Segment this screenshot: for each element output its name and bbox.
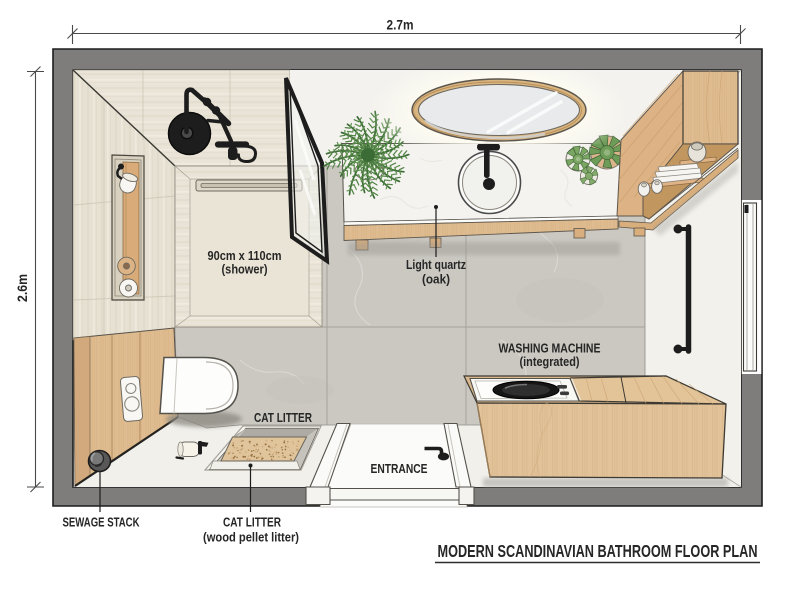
svg-text:MODERN SCANDINAVIAN BATHROOM F: MODERN SCANDINAVIAN BATHROOM FLOOR PLAN (438, 541, 758, 561)
svg-text:ENTRANCE: ENTRANCE (371, 462, 428, 476)
svg-text:Light quartz: Light quartz (406, 258, 466, 272)
svg-text:(shower): (shower) (222, 263, 268, 277)
svg-text:2.7m: 2.7m (387, 18, 414, 33)
svg-text:(wood pellet litter): (wood pellet litter) (203, 531, 299, 545)
svg-text:(integrated): (integrated) (520, 354, 580, 369)
svg-text:SEWAGE STACK: SEWAGE STACK (63, 516, 140, 530)
svg-text:(oak): (oak) (422, 273, 450, 287)
svg-text:90cm x 110cm: 90cm x 110cm (208, 249, 282, 263)
svg-text:2.6m: 2.6m (15, 274, 30, 302)
svg-text:CAT LITTER: CAT LITTER (223, 516, 281, 530)
svg-text:CAT LITTER: CAT LITTER (254, 410, 312, 425)
